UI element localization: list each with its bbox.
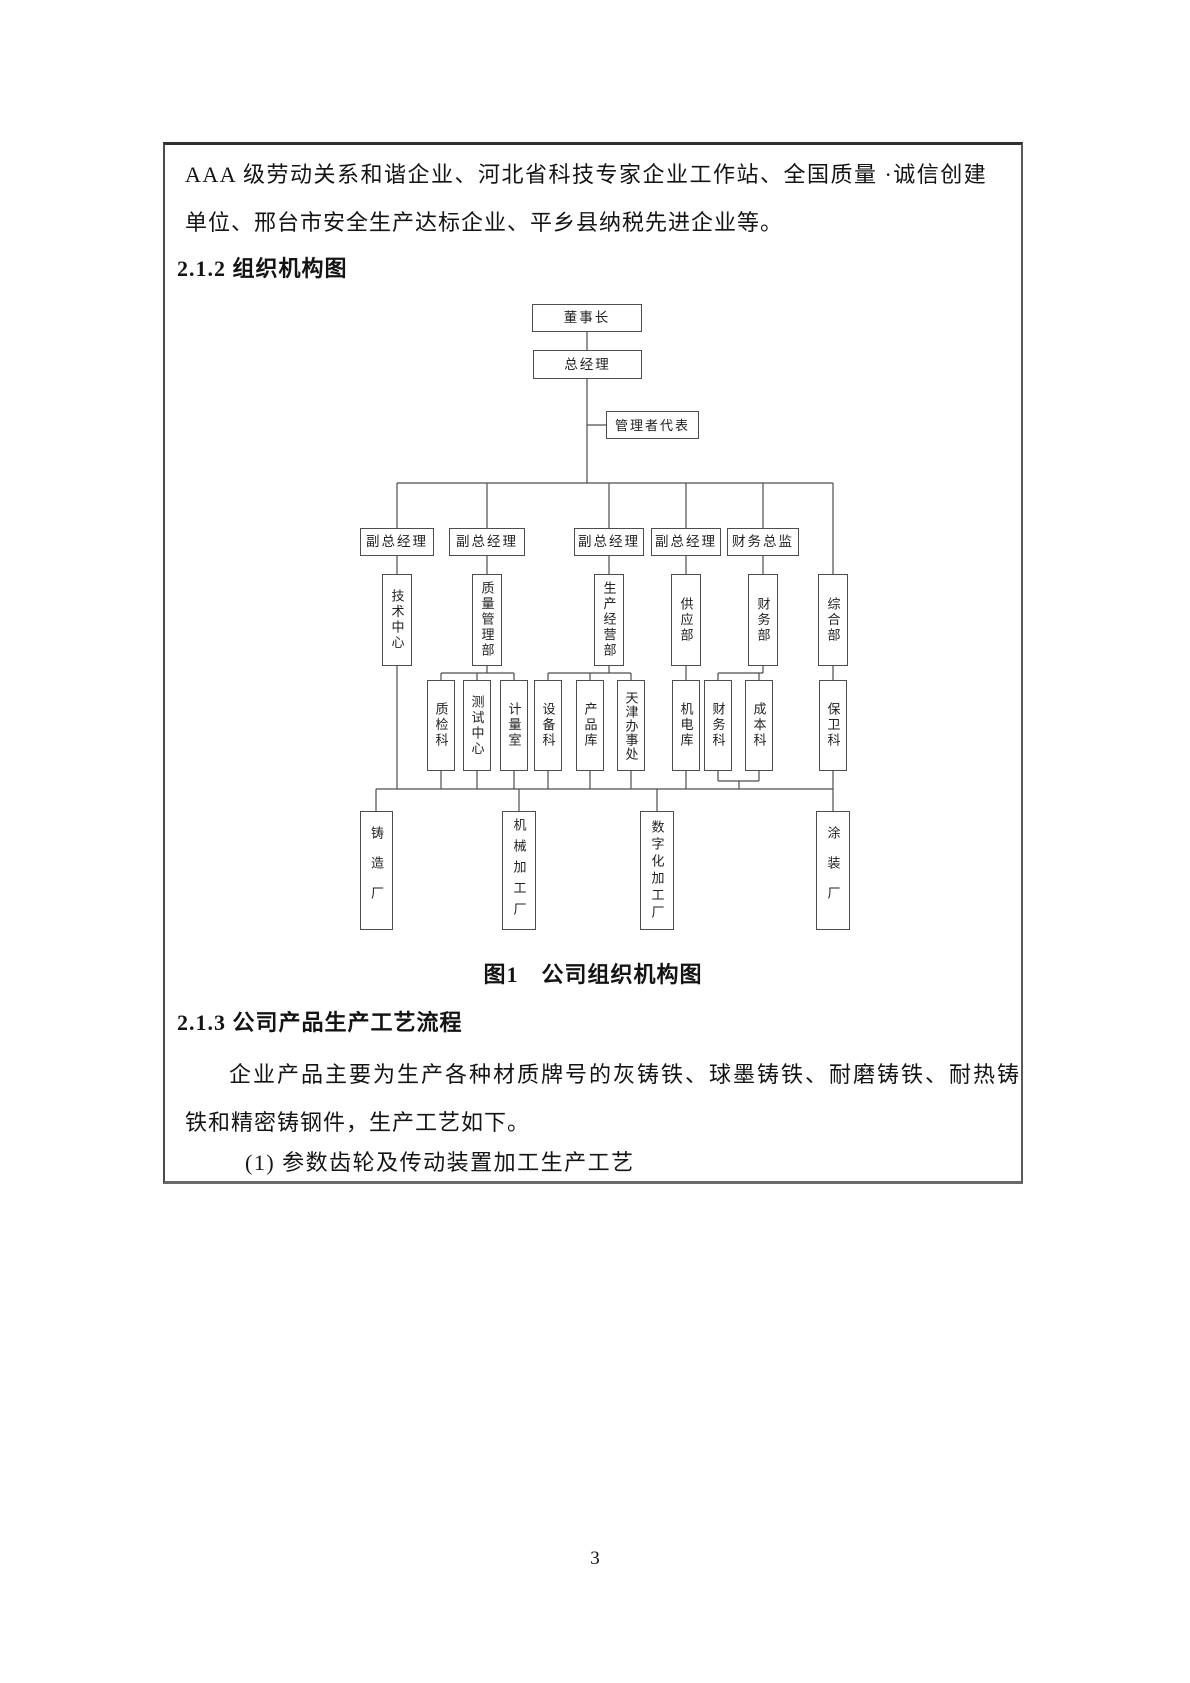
- list-item-1: (1) 参数齿轮及传动装置加工生产工艺: [245, 1145, 635, 1177]
- org-node-management-rep: 管理者代表: [606, 411, 699, 439]
- page-number: 3: [0, 1548, 1190, 1570]
- org-chart: 董事长 总经理 管理者代表 副总经理 副总经理 副总经理 副总经理 财务总监 技…: [165, 285, 1021, 947]
- org-node-general-manager: 总经理: [533, 350, 642, 379]
- org-node-chairman: 董事长: [532, 304, 642, 332]
- paragraph-1-line-1: AAA 级劳动关系和谐企业、河北省科技专家企业工作站、全国质量 ·诚信创建: [185, 157, 987, 189]
- org-node-digital-plant: 数字化加工厂: [640, 811, 674, 930]
- org-node-equipment-sec: 设备科: [534, 680, 562, 771]
- org-node-product-store: 产品库: [576, 680, 604, 771]
- org-chart-connectors: [165, 285, 1021, 947]
- org-node-tech-center: 技术中心: [382, 574, 412, 666]
- org-node-test-center: 测试中心: [463, 680, 491, 771]
- org-node-security-sec: 保卫科: [819, 680, 847, 771]
- org-node-vgm4: 副总经理: [651, 528, 721, 556]
- org-node-metrology-room: 计量室: [500, 680, 528, 771]
- org-node-finance-dept: 财务部: [748, 574, 778, 666]
- org-node-finance-sec: 财务科: [704, 680, 732, 771]
- org-node-quality-dept: 质量管理部: [472, 574, 502, 666]
- paragraph-2-line-1: 企业产品主要为生产各种材质牌号的灰铸铁、球墨铸铁、耐磨铸铁、耐热铸: [229, 1057, 1021, 1089]
- org-node-machining-plant: 机械加工厂: [502, 811, 536, 930]
- heading-2-1-2: 2.1.2 组织机构图: [177, 251, 348, 283]
- org-node-supply-dept: 供应部: [671, 574, 701, 666]
- org-node-general-dept: 综合部: [818, 574, 848, 666]
- org-node-inspection-sec: 质检科: [427, 680, 455, 771]
- paragraph-2-line-2: 铁和精密铸钢件，生产工艺如下。: [185, 1105, 530, 1137]
- org-node-tianjin-office: 天津办事处: [617, 680, 645, 771]
- org-node-vgm3: 副总经理: [574, 528, 644, 556]
- table-cell: AAA 级劳动关系和谐企业、河北省科技专家企业工作站、全国质量 ·诚信创建 单位…: [163, 142, 1023, 1184]
- org-node-vgm1: 副总经理: [360, 528, 434, 556]
- org-node-cfo: 财务总监: [727, 528, 799, 556]
- org-node-foundry-plant: 铸造厂: [360, 811, 393, 930]
- paragraph-1-line-2: 单位、邢台市安全生产达标企业、平乡县纳税先进企业等。: [185, 205, 783, 237]
- org-node-electromech-store: 机电库: [672, 680, 700, 771]
- org-node-vgm2: 副总经理: [449, 528, 525, 556]
- org-node-cost-sec: 成本科: [745, 680, 773, 771]
- org-node-production-dept: 生产经营部: [594, 574, 624, 666]
- figure-caption: 图1 公司组织机构图: [165, 957, 1021, 989]
- org-node-painting-plant: 涂装厂: [816, 811, 850, 930]
- heading-2-1-3: 2.1.3 公司产品生产工艺流程: [177, 1005, 463, 1037]
- document-page: AAA 级劳动关系和谐企业、河北省科技专家企业工作站、全国质量 ·诚信创建 单位…: [0, 0, 1190, 1683]
